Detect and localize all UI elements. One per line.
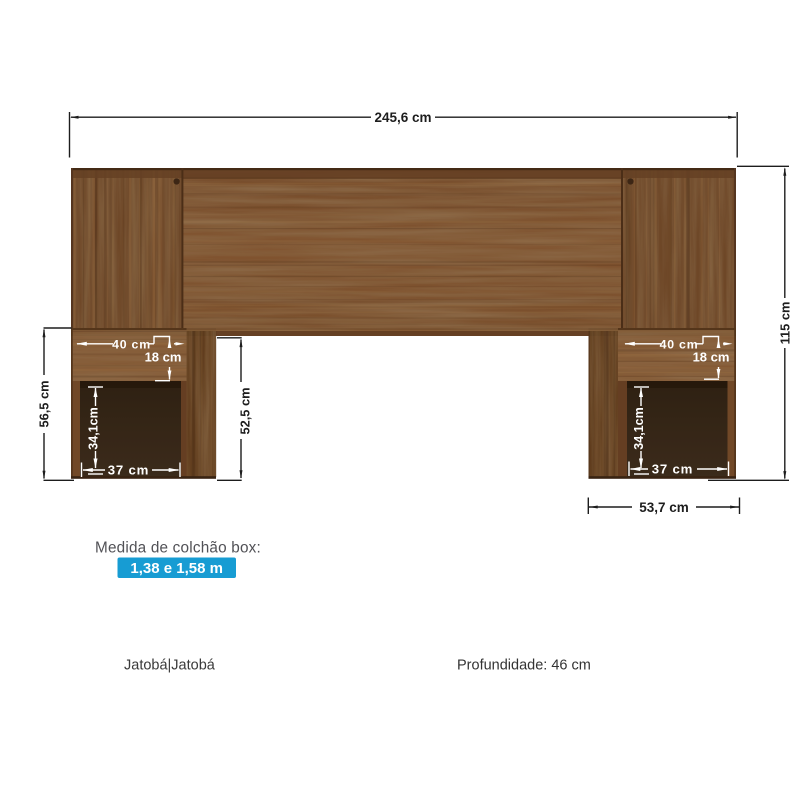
svg-text:37 cm: 37 cm	[108, 463, 149, 478]
svg-text:245,6 cm: 245,6 cm	[374, 110, 431, 125]
svg-text:18 cm: 18 cm	[145, 349, 182, 364]
svg-text:1,38 e 1,58 m: 1,38 e 1,58 m	[130, 560, 223, 577]
svg-text:34,1cm: 34,1cm	[632, 407, 646, 449]
svg-text:53,7 cm: 53,7 cm	[639, 500, 689, 515]
svg-text:Profundidade: 46 cm: Profundidade: 46 cm	[457, 658, 591, 674]
svg-text:Jatobá|Jatobá: Jatobá|Jatobá	[124, 658, 216, 674]
svg-text:37 cm: 37 cm	[652, 462, 693, 477]
svg-text:34,1cm: 34,1cm	[87, 407, 101, 449]
svg-text:56,5 cm: 56,5 cm	[37, 381, 52, 428]
svg-text:52,5 cm: 52,5 cm	[238, 388, 253, 435]
svg-text:Medida de colchão box:: Medida de colchão box:	[95, 540, 261, 557]
svg-text:18 cm: 18 cm	[693, 349, 730, 364]
svg-text:115 cm: 115 cm	[778, 302, 793, 345]
